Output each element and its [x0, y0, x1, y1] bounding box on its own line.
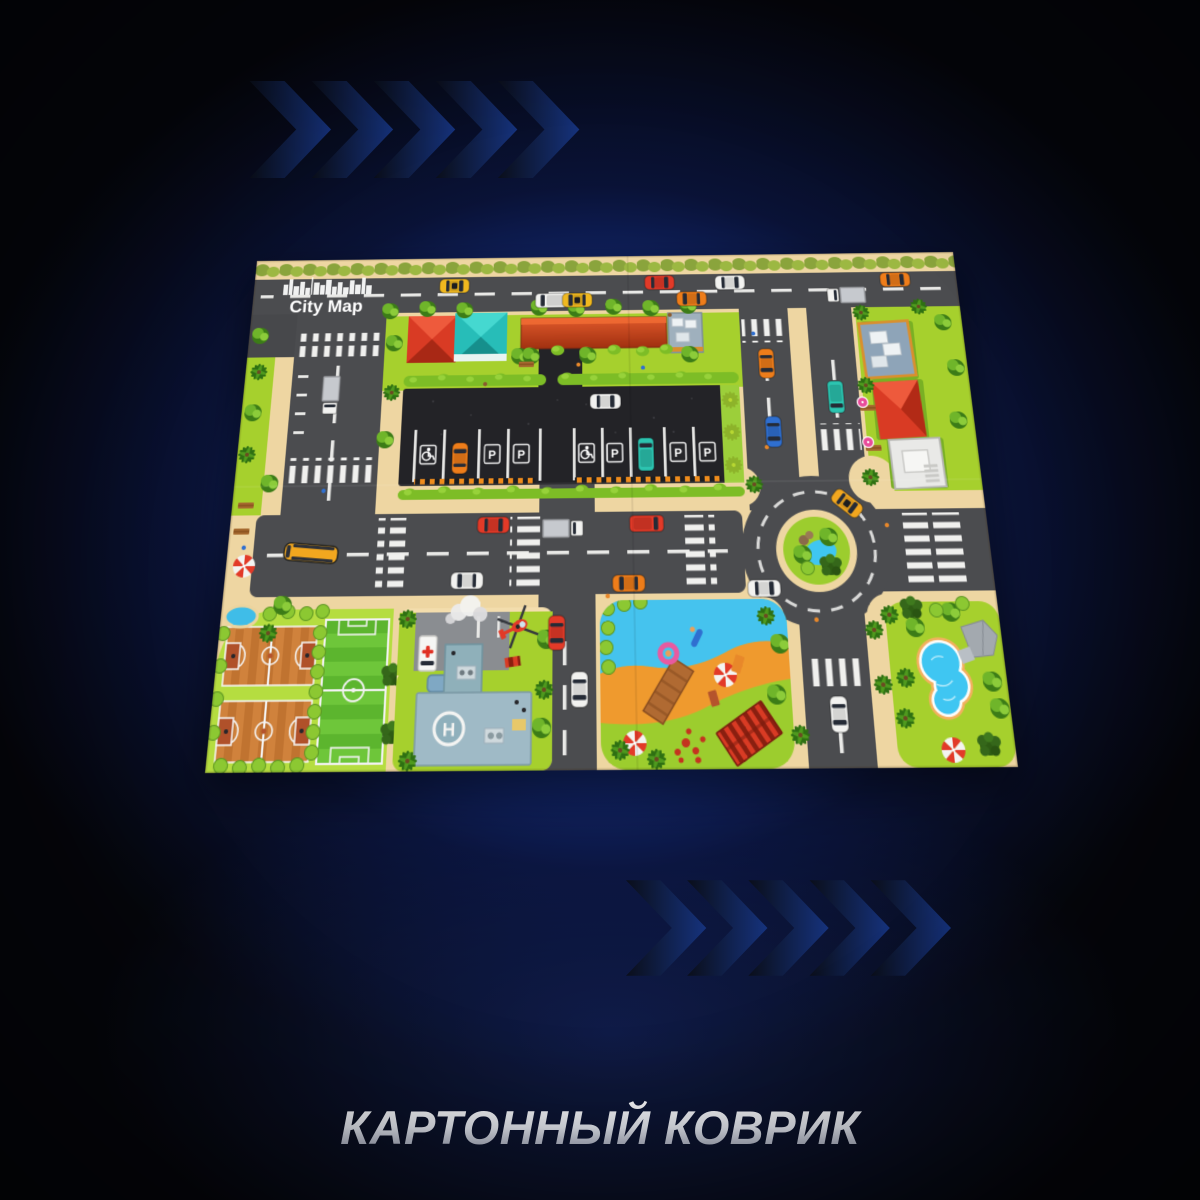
taxi-vehicle — [440, 279, 470, 293]
basketball-court — [215, 701, 313, 763]
crosswalk — [817, 423, 862, 450]
bus-vehicle — [283, 542, 339, 564]
soccer-field — [316, 619, 389, 764]
helipad-letter: H — [442, 720, 456, 741]
crosswalk — [741, 319, 788, 343]
teal-roof-house — [454, 312, 508, 361]
car-vehicle — [590, 394, 621, 409]
red-roof-building — [872, 380, 927, 439]
crosswalk — [509, 516, 540, 590]
hospital-annex — [444, 644, 483, 693]
parking-sign: P — [670, 443, 686, 462]
swimmer-ring — [660, 645, 677, 663]
car-vehicle — [477, 517, 509, 533]
hospital-block: H — [391, 594, 556, 771]
city-map-playmat: H — [205, 252, 1018, 773]
taxi-vehicle — [562, 293, 592, 307]
caption-text: КАРТОННЫЙ КОВРИК — [340, 1101, 862, 1154]
parking-sign: P — [699, 442, 715, 461]
disabled-parking-sign — [420, 445, 436, 464]
parking-sign: P — [484, 445, 500, 464]
car-vehicle — [452, 443, 469, 474]
car-vehicle — [676, 292, 706, 306]
truck-vehicle — [321, 377, 340, 414]
ambulance-vehicle — [418, 636, 437, 671]
car-vehicle — [830, 696, 850, 732]
van-vehicle — [827, 381, 845, 413]
car-vehicle — [715, 275, 745, 289]
car-vehicle — [548, 616, 565, 651]
hospital-main-building: H — [414, 692, 532, 766]
svg-text:P: P — [517, 449, 525, 462]
svg-text:P: P — [488, 450, 496, 463]
product-photo-playmat: H — [205, 252, 1018, 773]
parking-sign: P — [607, 443, 623, 462]
car-vehicle — [612, 575, 645, 592]
svg-text:P: P — [674, 447, 682, 460]
disabled-parking-sign — [579, 444, 595, 463]
crosswalk — [298, 333, 382, 357]
truck-vehicle — [827, 287, 866, 302]
car-vehicle — [748, 580, 782, 597]
car-vehicle — [765, 416, 783, 447]
white-building — [889, 438, 947, 489]
svg-text:P: P — [611, 448, 619, 461]
crosswalk — [287, 457, 374, 483]
van-vehicle — [630, 515, 664, 531]
pool-garden — [883, 595, 1018, 768]
car-vehicle — [644, 275, 674, 289]
small-pond — [224, 606, 258, 628]
chevron-arrows-bottom-icon — [626, 879, 951, 977]
car-vehicle — [451, 572, 484, 589]
crosswalk — [375, 518, 407, 592]
car-vehicle — [571, 672, 588, 708]
chevron-arrows-top-icon — [249, 81, 580, 178]
crosswalk — [684, 515, 717, 589]
advert-background: H — [0, 0, 1200, 1200]
crosswalk — [806, 655, 867, 686]
parking-sign: P — [513, 444, 529, 463]
logo-title: City Map — [289, 297, 364, 316]
skylight-building — [859, 321, 917, 379]
crosswalk — [902, 512, 969, 587]
truck-vehicle — [543, 520, 583, 538]
van-vehicle — [638, 438, 654, 471]
caption-banner: КАРТОННЫЙ КОВРИК — [0, 1096, 1200, 1186]
svg-text:P: P — [703, 447, 712, 460]
sports-park — [205, 595, 410, 773]
car-vehicle — [758, 349, 775, 379]
mall-strip-building — [521, 317, 667, 349]
car-vehicle — [879, 272, 910, 286]
red-roof-house — [406, 316, 457, 363]
